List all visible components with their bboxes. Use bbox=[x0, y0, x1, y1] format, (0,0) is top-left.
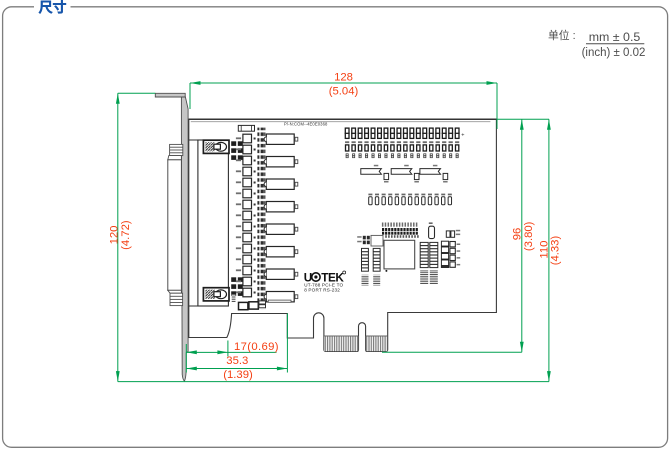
svg-text:尺寸: 尺寸 bbox=[39, 0, 67, 15]
svg-text:单位 :: 单位 : bbox=[548, 28, 576, 42]
svg-text:(5.04): (5.04) bbox=[329, 85, 359, 97]
svg-text:128: 128 bbox=[334, 71, 353, 83]
svg-text:(inch) ± 0.02: (inch) ± 0.02 bbox=[582, 47, 646, 59]
svg-text:8 PORT RS-232: 8 PORT RS-232 bbox=[304, 287, 340, 292]
svg-text:(1.39): (1.39) bbox=[223, 369, 253, 381]
svg-text:+: + bbox=[461, 133, 464, 139]
svg-text:(3.80): (3.80) bbox=[523, 221, 535, 251]
svg-text:(4.33): (4.33) bbox=[550, 236, 562, 266]
svg-text:(4.72): (4.72) bbox=[120, 220, 132, 250]
svg-text:P/-N:COM--4E0E0368: P/-N:COM--4E0E0368 bbox=[284, 122, 328, 127]
svg-text:120: 120 bbox=[109, 226, 121, 245]
svg-text:35.3: 35.3 bbox=[226, 355, 248, 367]
svg-text:17(0.69): 17(0.69) bbox=[234, 341, 279, 353]
svg-text:mm ± 0.5: mm ± 0.5 bbox=[589, 30, 641, 44]
svg-text:96: 96 bbox=[511, 228, 523, 241]
